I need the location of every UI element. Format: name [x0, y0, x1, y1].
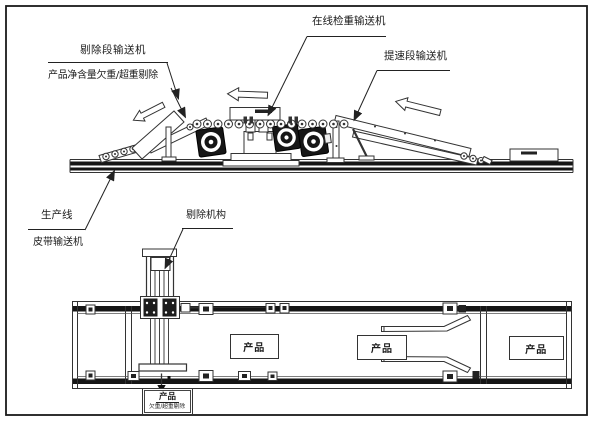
leader-reject-section: [167, 63, 179, 99]
label-checkweigher-conveyor: 在线检重输送机: [312, 15, 386, 27]
label-reject-description: 产品净含量欠重/超重剔除: [48, 70, 158, 82]
drawing-border: [6, 6, 587, 415]
leader-checkweigher: [268, 37, 307, 116]
production-belt-side: [70, 160, 573, 173]
flow-arrow-left-center-icon: [227, 87, 267, 101]
leader-production-line: [85, 171, 115, 231]
rejected-product-title: 产品: [156, 392, 179, 403]
label-production-line: 生产线: [41, 209, 73, 221]
technical-drawing: [0, 0, 600, 425]
label-speedup-conveyor: 提速段输送机: [384, 50, 447, 62]
drum-right: [298, 126, 332, 157]
reject-incline-conveyor: [99, 111, 209, 163]
speedup-incline-conveyor: [327, 116, 492, 166]
label-belt-conveyor: 皮带输送机: [33, 237, 83, 249]
cad-drawing-page: 剔除段输送机 产品净含量欠重/超重剔除 在线检重输送机 提速段输送机 生产线 皮…: [0, 0, 600, 425]
label-reject-mechanism: 剔除机构: [186, 210, 226, 222]
plan-view: [72, 249, 572, 393]
flow-arrow-left-right-icon: [394, 95, 442, 119]
checkweigher-unit: [193, 108, 348, 167]
drum-mid: [272, 123, 300, 151]
product-box-3: 产品: [509, 336, 564, 360]
product-box-1: 产品: [230, 334, 280, 359]
flow-arrow-reject-incline-icon: [131, 99, 167, 125]
label-reject-section-conveyor: 剔除段输送机: [80, 44, 146, 56]
product-box-2: 产品: [357, 335, 407, 360]
leader-speedup: [354, 71, 377, 121]
rejected-product-box: 产品 欠重/超重剔除: [142, 388, 193, 415]
rejected-product-subtitle: 欠重/超重剔除: [149, 403, 185, 410]
product-box-side-view: [510, 149, 558, 161]
drum-left: [196, 127, 226, 157]
